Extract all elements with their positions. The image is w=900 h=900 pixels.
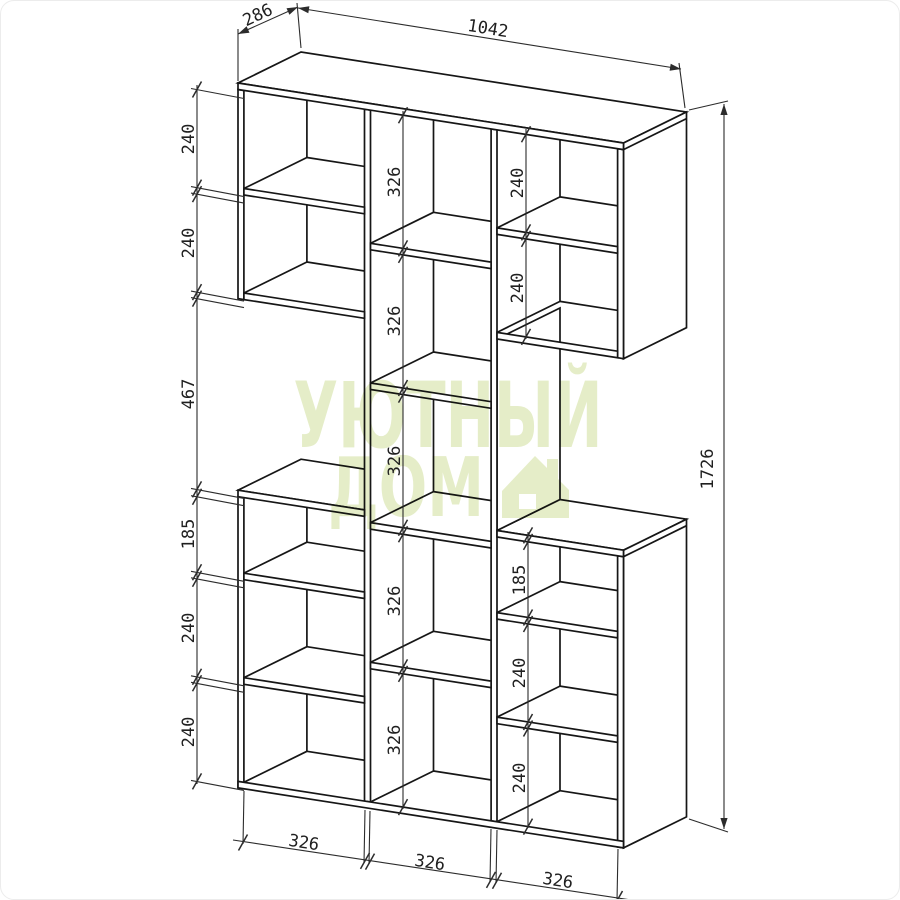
dim-label-middle-2: 326 [385, 446, 405, 477]
dim-label-bottom-0: 326 [287, 831, 320, 856]
dim-label-righttop-1: 240 [508, 273, 528, 304]
dim-label-middle-4: 326 [385, 725, 405, 756]
dim-label-left-0: 240 [179, 124, 199, 155]
dim-label-left-3: 185 [179, 519, 199, 550]
dim-label-left-1: 240 [179, 228, 199, 259]
dim-label-righttop-0: 240 [508, 168, 528, 199]
dim-label-bottom-1: 326 [413, 851, 446, 876]
dim-label-middle-3: 326 [385, 586, 405, 617]
dim-label-middle-1: 326 [385, 306, 405, 337]
dim-label-left-5: 240 [179, 717, 199, 748]
dim-label-rightbottom-1: 240 [510, 658, 530, 689]
dim-label-left-4: 240 [179, 613, 199, 644]
dim-label-height: 1726 [698, 449, 718, 490]
drawing-canvas: УЮТНЫЙ ДОМ 286 1042 1726 240 240 467 185… [0, 0, 900, 900]
dim-label-rightbottom-0: 185 [510, 565, 530, 596]
dim-label-rightbottom-2: 240 [510, 763, 530, 794]
watermark: УЮТНЫЙ ДОМ [294, 362, 603, 536]
dim-label-left-2: 467 [179, 379, 199, 410]
dim-label-top-width: 1042 [466, 16, 510, 42]
dim-label-depth: 286 [240, 1, 276, 31]
dim-label-bottom-2: 326 [541, 869, 574, 894]
dim-label-middle-0: 326 [385, 167, 405, 198]
